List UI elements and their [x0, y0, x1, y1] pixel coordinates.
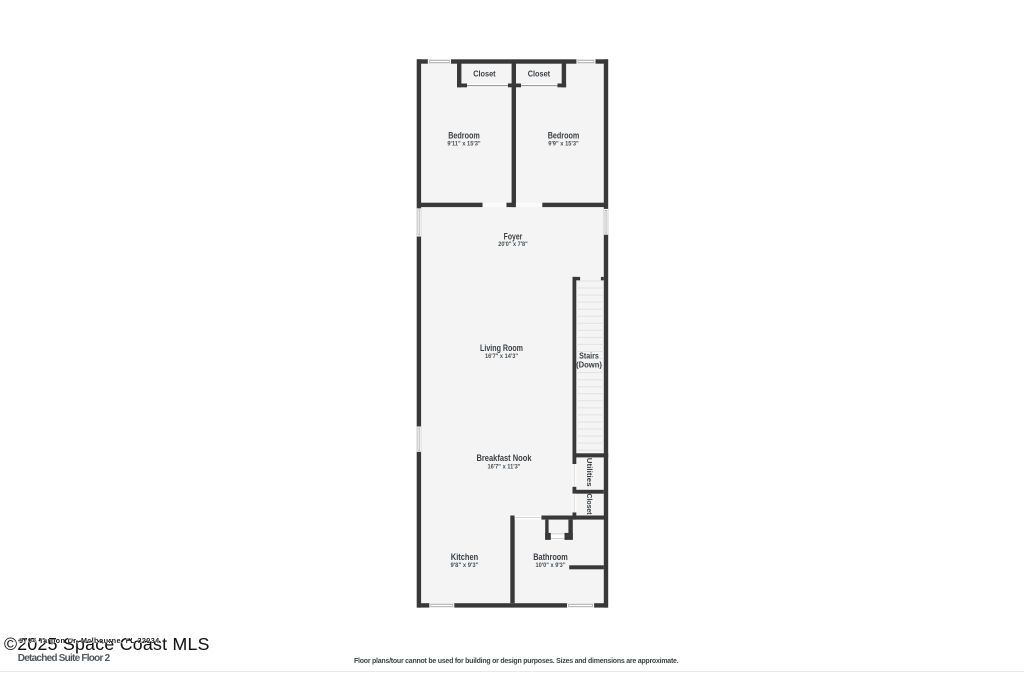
svg-text:Kitchen: Kitchen	[451, 552, 479, 562]
svg-text:Foyer: Foyer	[504, 232, 523, 242]
svg-text:Living Room: Living Room	[480, 343, 523, 353]
svg-text:Utilities: Utilities	[585, 458, 594, 487]
svg-text:Closet: Closet	[585, 494, 594, 516]
svg-text:16'7" x 14'3": 16'7" x 14'3"	[485, 353, 518, 360]
svg-text:Bedroom: Bedroom	[548, 130, 580, 140]
svg-text:10'0" x 9'3": 10'0" x 9'3"	[536, 562, 566, 569]
svg-text:9'8" x 9'3": 9'8" x 9'3"	[451, 562, 479, 569]
svg-text:9'11" x 15'3": 9'11" x 15'3"	[447, 140, 480, 147]
svg-text:(Down): (Down)	[576, 360, 602, 369]
svg-text:9'9" x 15'3": 9'9" x 15'3"	[548, 140, 579, 147]
svg-text:20'0" x 7'8": 20'0" x 7'8"	[498, 241, 528, 248]
svg-text:Bedroom: Bedroom	[448, 130, 480, 140]
svg-text:Bathroom: Bathroom	[533, 552, 568, 562]
svg-text:Stairs: Stairs	[579, 351, 599, 360]
svg-text:Breakfast Nook: Breakfast Nook	[476, 453, 532, 463]
svg-text:16'7" x 11'3": 16'7" x 11'3"	[488, 464, 521, 471]
svg-text:Closet: Closet	[528, 69, 551, 79]
svg-text:Closet: Closet	[473, 69, 496, 79]
